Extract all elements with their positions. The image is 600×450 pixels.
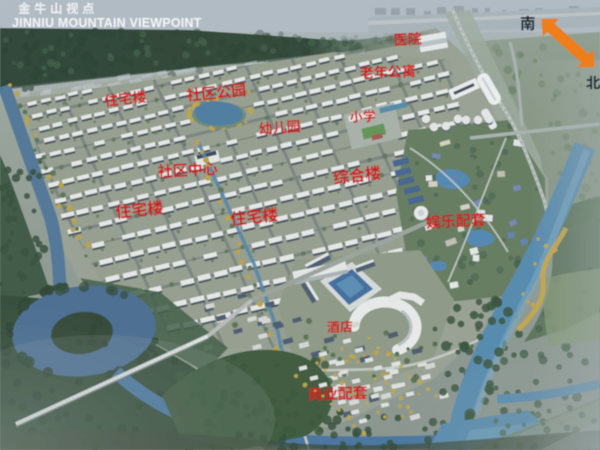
svg-text:JINNIU MOUNTAIN VIEWPOINT: JINNIU MOUNTAIN VIEWPOINT xyxy=(12,16,202,30)
